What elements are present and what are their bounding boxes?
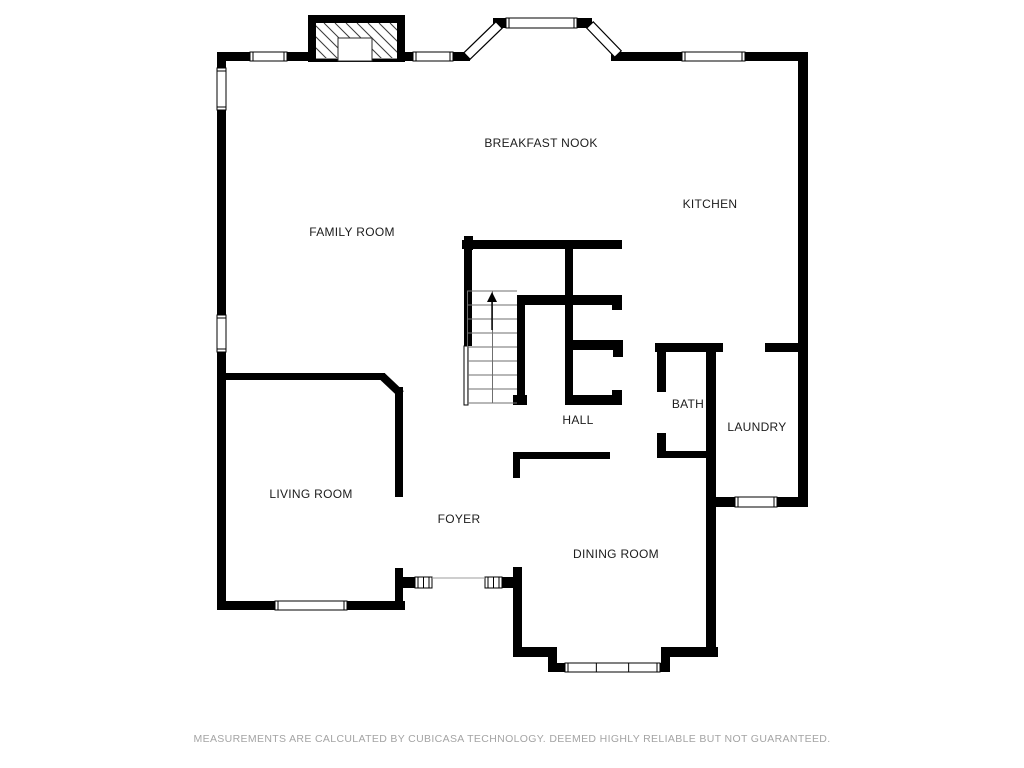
wall — [655, 343, 723, 352]
wall — [513, 567, 522, 657]
wall — [217, 110, 226, 315]
wall — [395, 568, 403, 609]
wall — [405, 52, 413, 61]
room-label-living-room: LIVING ROOM — [269, 487, 352, 501]
wall — [287, 52, 308, 61]
window — [217, 315, 226, 352]
wall — [513, 452, 520, 478]
floorplan-canvas: BREAKFAST NOOK KITCHEN FAMILY ROOM HALL … — [0, 0, 1024, 768]
wall — [513, 452, 610, 459]
wall — [657, 352, 666, 392]
window — [413, 52, 453, 61]
wall — [612, 305, 622, 310]
room-label-foyer: FOYER — [438, 512, 481, 526]
wall — [613, 340, 623, 357]
wall — [462, 240, 622, 249]
wall — [765, 343, 798, 352]
wall — [657, 451, 707, 458]
window-diagonal — [464, 22, 502, 59]
window — [682, 52, 745, 61]
wall — [517, 305, 525, 396]
window — [275, 601, 347, 610]
wall — [745, 52, 798, 61]
window — [217, 68, 226, 110]
room-label-bath: BATH — [672, 397, 704, 411]
wall — [403, 577, 415, 588]
wall-diagonal — [382, 376, 401, 394]
window — [250, 52, 287, 61]
wall — [798, 52, 808, 507]
wall — [395, 387, 403, 497]
window — [506, 18, 577, 28]
room-label-dining-room: DINING ROOM — [573, 547, 659, 561]
floorplan-drawing — [0, 0, 1024, 768]
wall — [620, 52, 682, 61]
footer-disclaimer: MEASUREMENTS ARE CALCULATED BY CUBICASA … — [0, 733, 1024, 745]
wall — [612, 390, 622, 405]
room-label-kitchen: KITCHEN — [683, 197, 738, 211]
room-label-breakfast-nook: BREAKFAST NOOK — [484, 136, 597, 150]
stairs-up-arrow-head — [487, 292, 497, 302]
wall — [502, 577, 514, 588]
room-label-laundry: LAUNDRY — [727, 420, 786, 434]
window-diagonal — [587, 22, 621, 57]
wall — [565, 249, 573, 405]
wall — [222, 373, 385, 380]
room-label-family-room: FAMILY ROOM — [309, 225, 395, 239]
room-label-hall: HALL — [562, 413, 593, 427]
window — [735, 497, 777, 507]
window — [565, 663, 660, 672]
wall — [217, 352, 226, 601]
wall — [573, 340, 615, 350]
fireplace-firebox — [338, 38, 372, 61]
wall — [217, 52, 226, 68]
